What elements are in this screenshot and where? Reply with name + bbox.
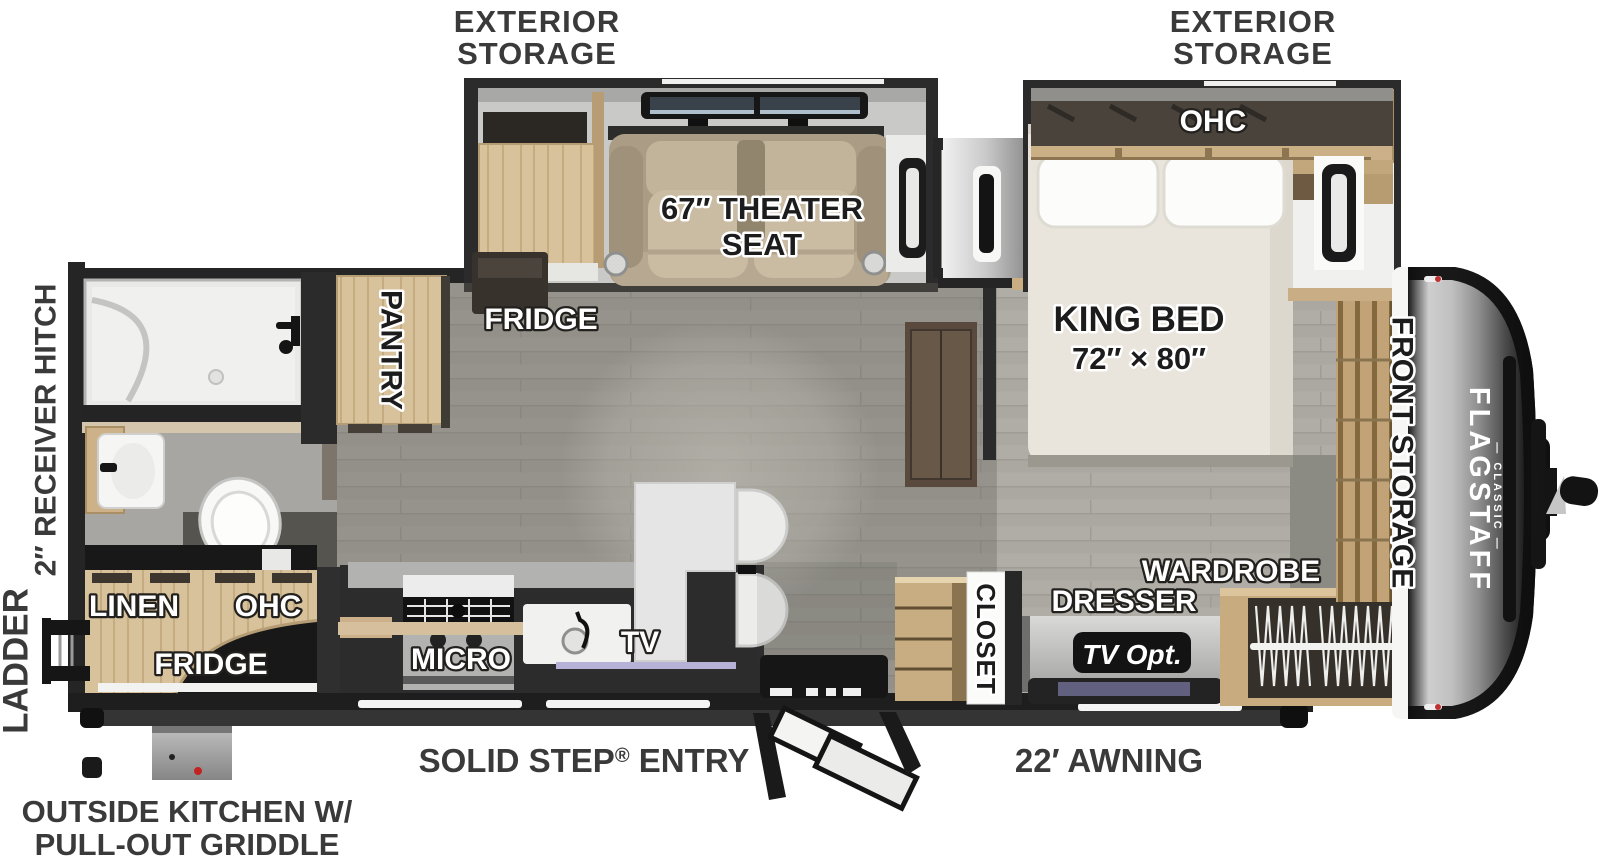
svg-text:OUTSIDE KITCHEN W/: OUTSIDE KITCHEN W/ (22, 794, 353, 829)
svg-text:22′ AWNING: 22′ AWNING (1015, 742, 1203, 779)
svg-text:SOLID STEP® ENTRY: SOLID STEP® ENTRY (419, 742, 750, 779)
svg-text:OHC: OHC (235, 590, 302, 623)
svg-text:2″ RECEIVER HITCH: 2″ RECEIVER HITCH (30, 284, 63, 577)
svg-text:FRONT STORAGE: FRONT STORAGE (1386, 317, 1419, 589)
svg-text:PANTRY: PANTRY (375, 290, 408, 410)
svg-text:LADDER: LADDER (0, 588, 36, 734)
svg-text:DRESSER: DRESSER (1051, 585, 1196, 618)
svg-text:TV: TV (621, 626, 659, 659)
svg-text:LINEN: LINEN (89, 590, 179, 623)
svg-text:WARDROBE: WARDROBE (1142, 555, 1320, 588)
svg-text:EXTERIOR: EXTERIOR (1170, 4, 1336, 39)
svg-text:FRIDGE: FRIDGE (484, 303, 597, 336)
svg-text:STORAGE: STORAGE (1173, 36, 1333, 71)
svg-text:— CLASSIC —: — CLASSIC — (1491, 442, 1503, 551)
svg-text:OHC: OHC (1180, 105, 1247, 138)
svg-text:CLOSET: CLOSET (971, 583, 1001, 694)
svg-text:TV Opt.: TV Opt. (1082, 639, 1182, 670)
svg-text:67″ THEATER: 67″ THEATER (661, 191, 863, 226)
svg-text:EXTERIOR: EXTERIOR (454, 4, 620, 39)
svg-text:PULL-OUT GRIDDLE: PULL-OUT GRIDDLE (35, 827, 340, 859)
svg-text:72″ × 80″: 72″ × 80″ (1072, 341, 1206, 376)
svg-text:STORAGE: STORAGE (457, 36, 617, 71)
svg-text:MICRO: MICRO (411, 643, 511, 676)
svg-text:KING BED: KING BED (1053, 300, 1224, 339)
svg-text:FLAGSTAFF: FLAGSTAFF (1463, 387, 1495, 593)
svg-text:SEAT: SEAT (722, 227, 802, 262)
svg-text:FRIDGE: FRIDGE (154, 648, 267, 681)
